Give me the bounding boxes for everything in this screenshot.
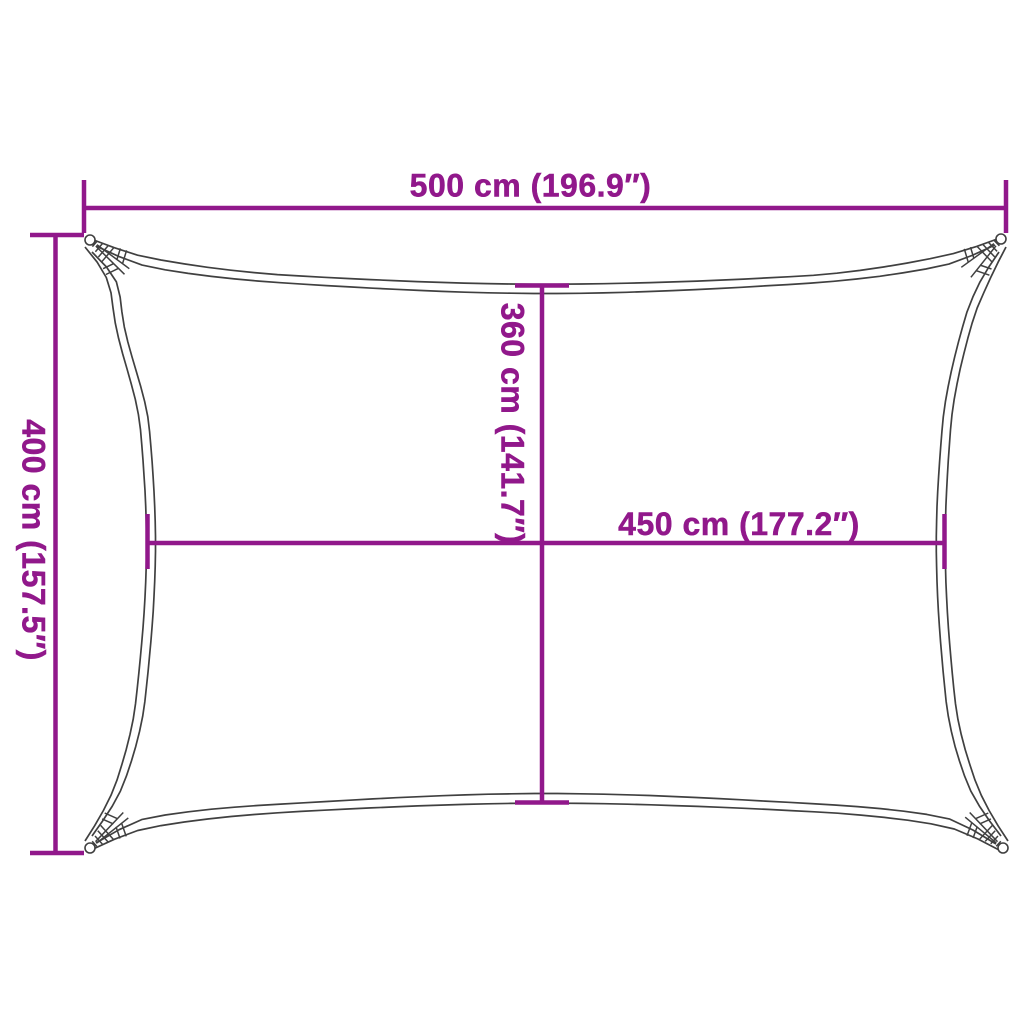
svg-text:450 cm (177.2″): 450 cm (177.2″) bbox=[618, 506, 860, 542]
svg-text:400 cm (157.5″): 400 cm (157.5″) bbox=[16, 419, 52, 661]
svg-text:360 cm (141.7″): 360 cm (141.7″) bbox=[495, 303, 531, 545]
svg-text:500 cm (196.9″): 500 cm (196.9″) bbox=[410, 168, 652, 204]
